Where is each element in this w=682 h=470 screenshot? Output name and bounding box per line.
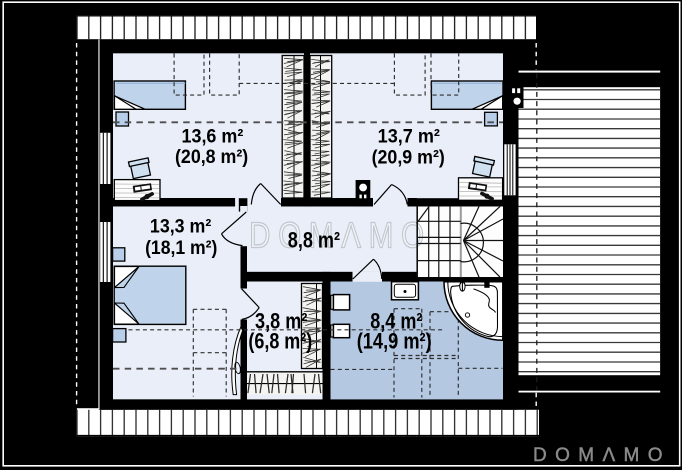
svg-text:DOMΛMO: DOMΛMO bbox=[533, 445, 671, 466]
svg-text:(18,1 m²): (18,1 m²) bbox=[145, 236, 217, 258]
svg-text:13,7 m²: 13,7 m² bbox=[378, 125, 440, 147]
svg-text:13,6 m²: 13,6 m² bbox=[182, 125, 244, 147]
svg-text:(20,9 m²): (20,9 m²) bbox=[372, 146, 445, 168]
svg-text:DOMΛMO: DOMΛMO bbox=[249, 214, 432, 254]
svg-text:13,3 m²: 13,3 m² bbox=[150, 215, 211, 237]
svg-text:(6,8 m²): (6,8 m²) bbox=[248, 329, 312, 353]
svg-text:(20,8 m²): (20,8 m²) bbox=[175, 145, 248, 167]
svg-text:(14,9 m²): (14,9 m²) bbox=[357, 328, 432, 353]
svg-text:8,8 m²: 8,8 m² bbox=[288, 227, 340, 252]
